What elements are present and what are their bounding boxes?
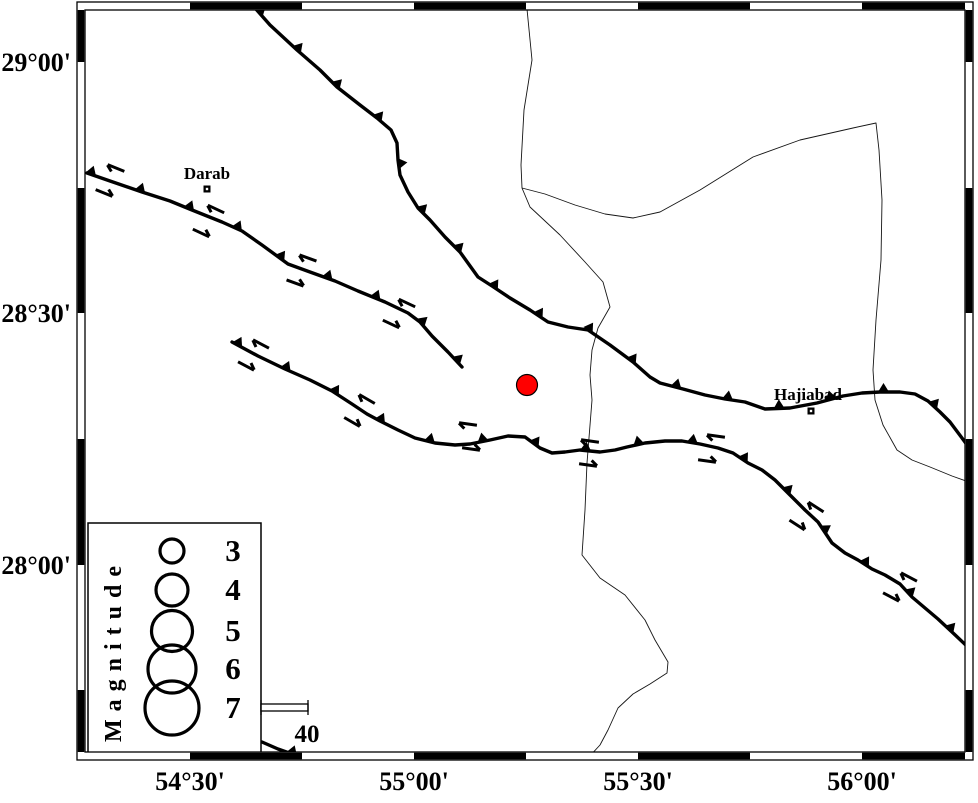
frame-segment	[966, 439, 973, 565]
epicenter-marker	[517, 375, 538, 396]
map-canvas: DarabHajiabadMagnitude345674054°30'55°00…	[0, 0, 978, 798]
x-axis-tick-label: 55°30'	[603, 767, 673, 796]
frame-band	[77, 2, 85, 760]
scale-bar-label: 40	[295, 721, 320, 748]
town-marker-center	[206, 188, 208, 190]
legend-magnitude-label: 6	[225, 651, 241, 686]
legend-magnitude-label: 4	[225, 572, 241, 607]
frame-segment	[78, 188, 85, 313]
legend-title: Magnitude	[101, 558, 127, 742]
frame-segment	[862, 3, 965, 10]
scale-bar	[261, 704, 308, 711]
x-axis-tick-label: 56°00'	[827, 767, 897, 796]
frame-segment	[190, 753, 302, 760]
frame-segment	[966, 10, 973, 62]
frame-segment	[414, 3, 526, 10]
frame-segment	[862, 753, 965, 760]
town-label: Hajiabad	[774, 385, 843, 404]
frame-segment	[190, 3, 302, 10]
frame-segment	[78, 690, 85, 752]
frame-segment	[638, 3, 750, 10]
y-axis-tick-label: 29°00'	[1, 48, 71, 77]
legend-magnitude-label: 3	[225, 533, 241, 568]
frame-segment	[966, 690, 973, 752]
legend-magnitude-label: 5	[225, 613, 241, 648]
frame-segment	[414, 753, 526, 760]
y-axis-tick-label: 28°00'	[1, 551, 71, 580]
map-figure: DarabHajiabadMagnitude345674054°30'55°00…	[0, 0, 978, 798]
town-label: Darab	[184, 164, 230, 183]
frame-segment	[638, 753, 750, 760]
legend-magnitude-label: 7	[225, 690, 241, 725]
town-marker-center	[810, 410, 812, 412]
frame-segment	[966, 188, 973, 313]
x-axis-tick-label: 54°30'	[155, 767, 225, 796]
frame-segment	[78, 439, 85, 565]
frame-band	[965, 2, 973, 760]
y-axis-tick-label: 28°30'	[1, 299, 71, 328]
frame-segment	[78, 10, 85, 62]
x-axis-tick-label: 55°00'	[379, 767, 449, 796]
